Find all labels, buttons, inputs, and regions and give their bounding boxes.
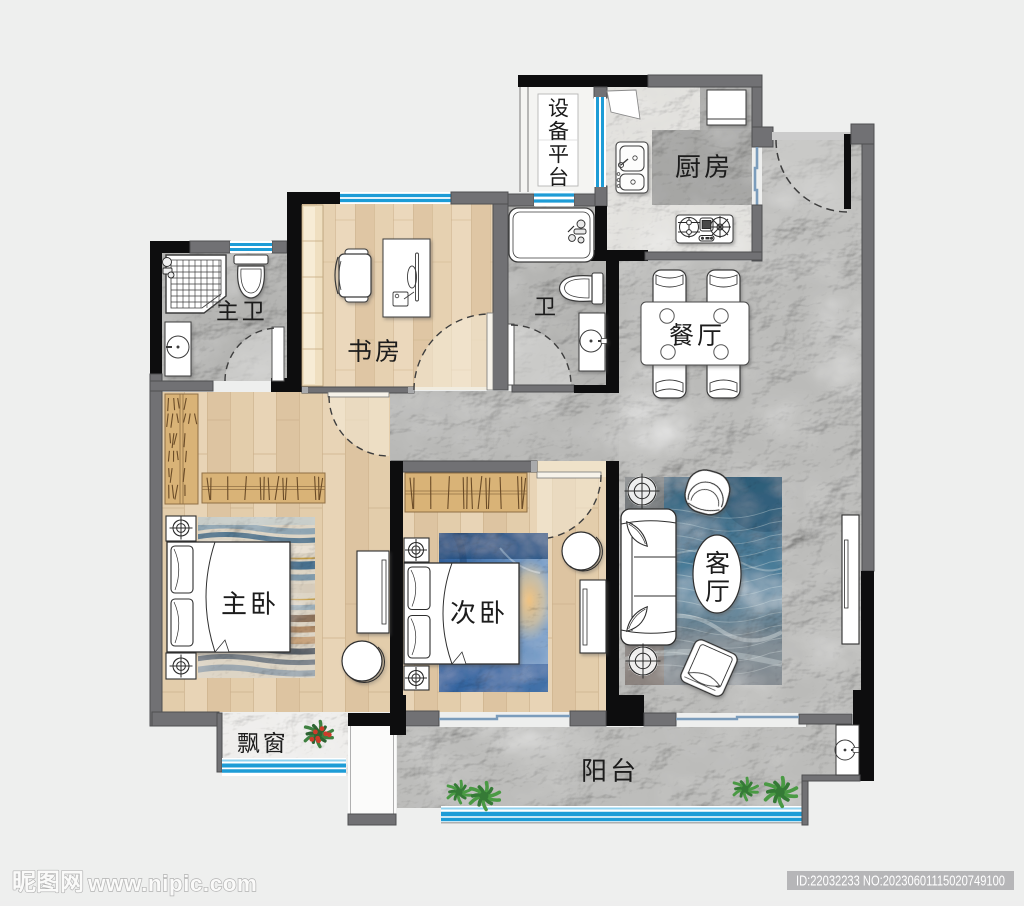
svg-text:www.nipic.com: www.nipic.com bbox=[87, 871, 257, 896]
svg-text:ID:22032233 NO:202306011150207: ID:22032233 NO:20230601115020749100 bbox=[796, 873, 1005, 890]
